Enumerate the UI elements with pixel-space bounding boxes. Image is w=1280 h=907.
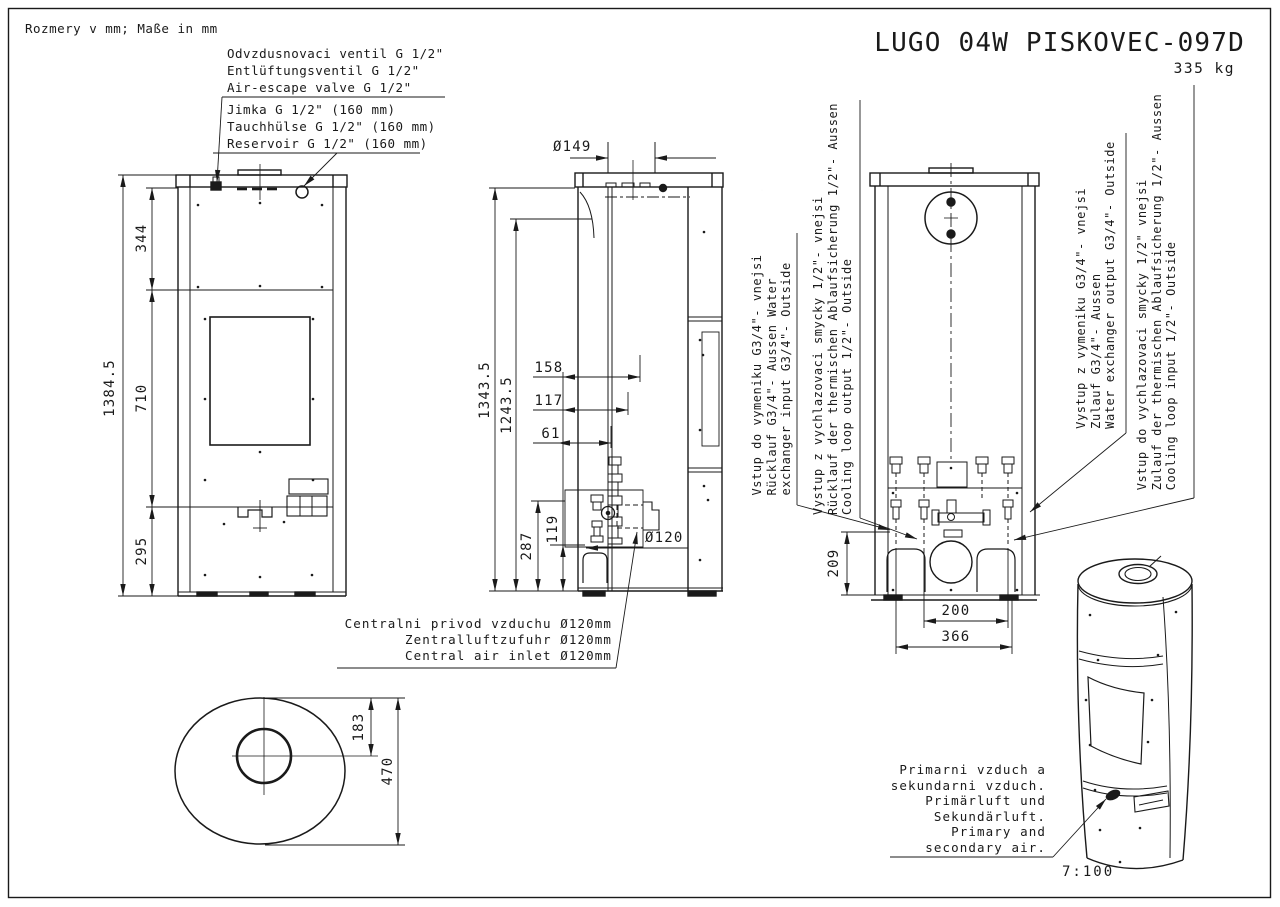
- drawing-linework: [0, 0, 1280, 907]
- dim-flue-diameter: Ø149: [553, 139, 592, 155]
- callout-line: Reservoir G 1/2" (160 mm): [227, 135, 436, 152]
- callout-line: Vystup z vychlazovaci smycky 1/2"- vnejs…: [811, 103, 826, 515]
- dim-bottom-470: 470: [380, 757, 396, 786]
- side-view-linework: [565, 142, 723, 596]
- callout-central-air-inlet: Centralni privod vzduchu Ø120mm Zentrall…: [345, 616, 612, 664]
- rear-view-pipes: [890, 457, 1014, 545]
- dim-front-window-section: 710: [134, 384, 150, 413]
- dim-side-height-shoulder: 1243.5: [499, 376, 515, 434]
- dim-side-158: 158: [535, 360, 564, 376]
- callout-line: Cooling loop output 1/2"- Outside: [840, 103, 855, 515]
- callout-line: Vystup z vymeniku G3/4"- vnejsi: [1074, 141, 1089, 429]
- callout-line: Sekundärluft.: [891, 809, 1046, 825]
- callout-line: Tauchhülse G 1/2" (160 mm): [227, 118, 436, 135]
- drawing-title: LUGO 04W PISKOVEC-097D: [874, 28, 1245, 58]
- callout-line: Primärluft und: [891, 793, 1046, 809]
- callout-water-exchanger-input: Vstup do vymeniku G3/4"- vnejsi Rücklauf…: [750, 254, 794, 495]
- dim-side-117: 117: [535, 393, 564, 409]
- callout-line: Odvzdusnovaci ventil G 1/2": [227, 45, 444, 62]
- dim-side-61: 61: [541, 426, 560, 442]
- callout-line: Vstup do vychlazovaci smycky 1/2" vnejsi: [1135, 94, 1150, 491]
- callout-line: Water exchanger output G3/4"- Outside: [1103, 141, 1118, 429]
- front-view-linework: [176, 164, 347, 596]
- callout-line: Zulauf der thermischen Ablaufsicherung 1…: [1150, 94, 1165, 491]
- front-view-dimensions: [118, 175, 190, 596]
- units-note: Rozmery v mm; Maße in mm: [25, 20, 218, 37]
- callout-line: Air-escape valve G 1/2": [227, 79, 444, 96]
- callout-line: Jimka G 1/2" (160 mm): [227, 101, 436, 118]
- dim-side-287: 287: [519, 532, 535, 561]
- dim-side-height-flue: 1343.5: [477, 361, 493, 419]
- dim-rear-200: 200: [942, 603, 971, 619]
- weight-value: 335 kg: [1174, 61, 1235, 77]
- callout-line: sekundarni vzduch.: [891, 778, 1046, 794]
- dim-air-inlet-diameter: Ø120: [645, 530, 684, 546]
- dim-front-bottom-section: 295: [134, 537, 150, 566]
- callout-line: Centralni privod vzduchu Ø120mm: [345, 616, 612, 632]
- callout-water-exchanger-output: Vystup z vymeniku G3/4"- vnejsi Zulauf G…: [1074, 141, 1118, 429]
- dim-rear-366: 366: [942, 629, 971, 645]
- callout-air-escape-valve: Odvzdusnovaci ventil G 1/2" Entlüftungsv…: [227, 45, 444, 96]
- callout-line: Primary and: [891, 824, 1046, 840]
- dim-side-119: 119: [545, 515, 561, 544]
- callout-line: Cooling loop input 1/2"- Outside: [1164, 94, 1179, 491]
- dim-front-total-height: 1384.5: [102, 359, 118, 417]
- rear-view-linework: [867, 163, 1040, 600]
- scale-note: 7:100: [1062, 864, 1114, 880]
- isometric-view-linework: [1077, 556, 1192, 869]
- callout-primary-secondary-air: Primarni vzduch a sekundarni vzduch. Pri…: [891, 762, 1046, 855]
- technical-drawing-sheet: Rozmery v mm; Maße in mm LUGO 04W PISKOV…: [0, 0, 1280, 907]
- dim-rear-209: 209: [826, 549, 842, 578]
- callout-line: exchanger input G3/4"- Outside: [779, 254, 794, 495]
- callout-line: Zentralluftzufuhr Ø120mm: [345, 632, 612, 648]
- callout-line: Vstup do vymeniku G3/4"- vnejsi: [750, 254, 765, 495]
- callout-line: Entlüftungsventil G 1/2": [227, 62, 444, 79]
- callout-line: Primarni vzduch a: [891, 762, 1046, 778]
- callout-cooling-loop-output: Vystup z vychlazovaci smycky 1/2"- vnejs…: [811, 103, 855, 515]
- callout-line: Zulauf G3/4"- Aussen: [1089, 141, 1104, 429]
- callout-line: Rücklauf G3/4"- Aussen Water: [765, 254, 780, 495]
- rear-view-dimensions: [841, 532, 1012, 654]
- dim-front-top-section: 344: [134, 224, 150, 253]
- rear-view-screws: [892, 467, 1019, 592]
- isometric-view-screws: [1085, 611, 1178, 864]
- callout-reservoir: Jimka G 1/2" (160 mm) Tauchhülse G 1/2" …: [227, 101, 436, 152]
- callout-line: Rücklauf der thermischen Ablaufsicherung…: [826, 103, 841, 515]
- dim-bottom-183: 183: [351, 713, 367, 742]
- callout-cooling-loop-input: Vstup do vychlazovaci smycky 1/2" vnejsi…: [1135, 94, 1179, 491]
- callout-line: secondary air.: [891, 840, 1046, 856]
- callout-line: Central air inlet Ø120mm: [345, 648, 612, 664]
- bottom-view-linework: [175, 697, 405, 845]
